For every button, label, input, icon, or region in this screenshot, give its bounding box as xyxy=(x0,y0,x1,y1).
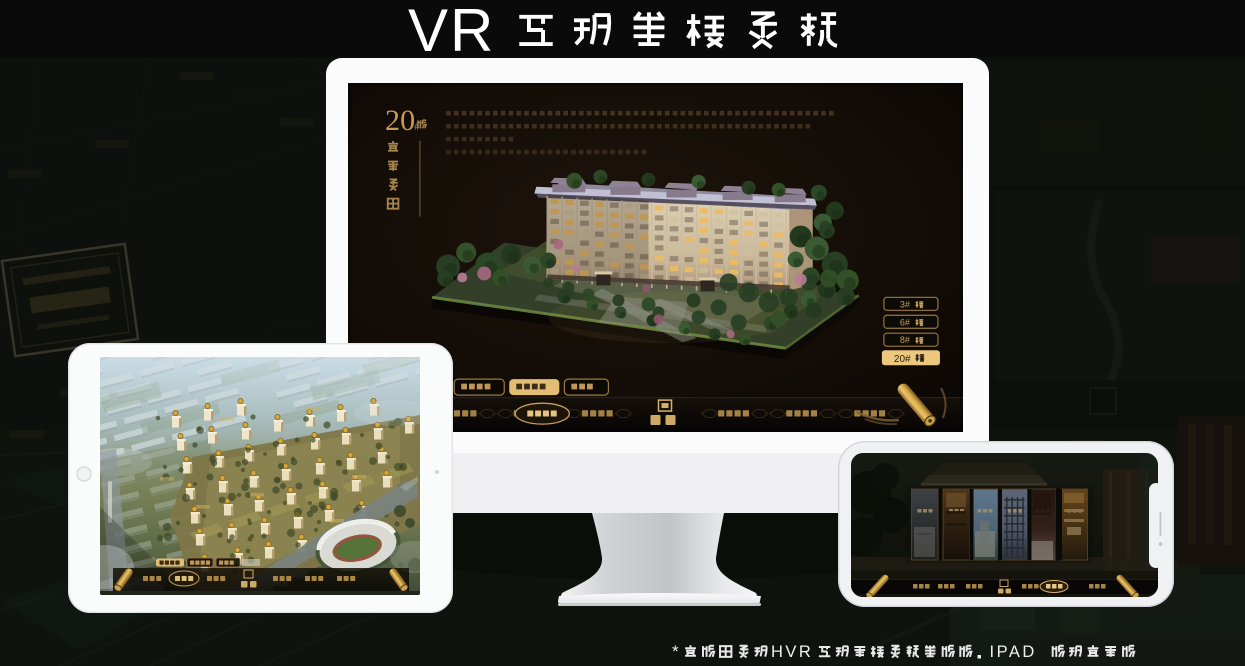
svg-text:*: * xyxy=(672,642,679,661)
svg-text:HVR: HVR xyxy=(771,643,813,661)
svg-text:IPAD: IPAD xyxy=(990,643,1037,661)
